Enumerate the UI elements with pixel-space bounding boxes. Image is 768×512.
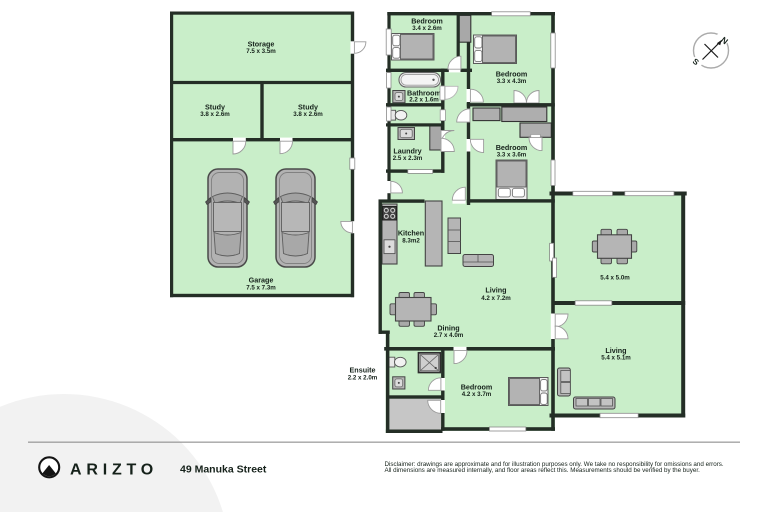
svg-text:49 Manuka Street: 49 Manuka Street <box>180 464 267 476</box>
svg-text:Garage: Garage <box>249 276 274 285</box>
svg-text:2.5 x 2.3m: 2.5 x 2.3m <box>393 155 423 162</box>
svg-text:3.8 x 2.6m: 3.8 x 2.6m <box>293 111 323 118</box>
svg-text:Living: Living <box>485 285 506 294</box>
svg-text:7.5 x 3.5m: 7.5 x 3.5m <box>246 48 276 55</box>
svg-text:3.3 x 3.6m: 3.3 x 3.6m <box>497 152 527 159</box>
svg-text:3.3 x 4.3m: 3.3 x 4.3m <box>497 78 527 85</box>
svg-text:4.2 x 7.2m: 4.2 x 7.2m <box>481 295 511 302</box>
svg-text:Kitchen: Kitchen <box>398 229 424 238</box>
svg-text:7.5 x 7.3m: 7.5 x 7.3m <box>246 285 276 292</box>
svg-text:8.3m2: 8.3m2 <box>402 238 420 245</box>
svg-text:ARIZTO: ARIZTO <box>70 461 158 478</box>
svg-text:All dimensions are measured in: All dimensions are measured internally, … <box>385 467 701 474</box>
svg-text:5.4 x 5.0m: 5.4 x 5.0m <box>600 275 630 282</box>
svg-text:5.4 x 5.1m: 5.4 x 5.1m <box>601 355 631 362</box>
svg-text:2.2 x 2.0m: 2.2 x 2.0m <box>348 374 378 381</box>
svg-text:2.7 x 4.0m: 2.7 x 4.0m <box>434 332 464 339</box>
svg-text:3.4 x 2.6m: 3.4 x 2.6m <box>412 25 442 32</box>
svg-text:2.2 x 1.6m: 2.2 x 1.6m <box>409 97 439 104</box>
svg-text:3.8 x 2.6m: 3.8 x 2.6m <box>200 111 230 118</box>
svg-text:4.2 x 3.7m: 4.2 x 3.7m <box>462 391 492 398</box>
